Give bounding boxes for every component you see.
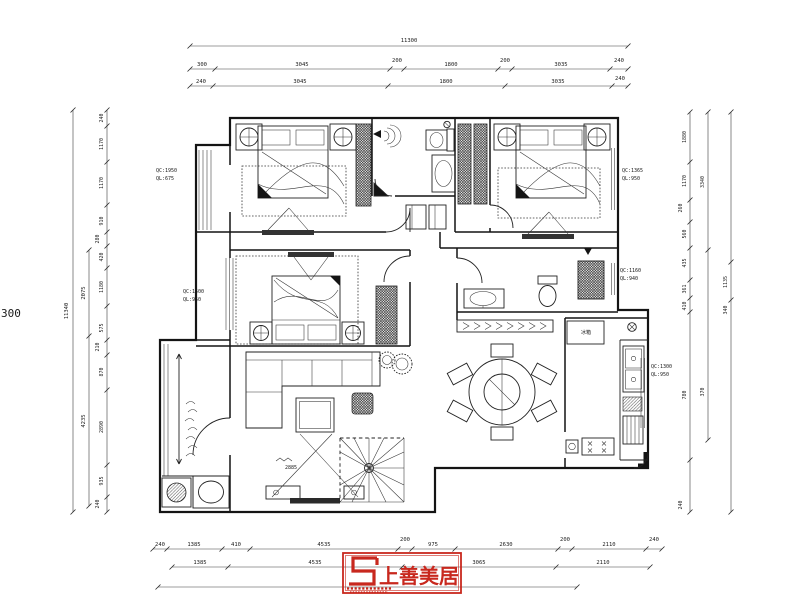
chair xyxy=(531,363,557,385)
floor-plan-drawing: 11300 300 3045 200 1800 200 3035 240 240… xyxy=(0,0,800,600)
dim-label: 2075 xyxy=(81,286,87,299)
tv xyxy=(290,498,340,504)
dim-label: 200 xyxy=(560,537,570,543)
dim-label: 1800 xyxy=(444,62,457,68)
dim-label: 1180 xyxy=(99,281,105,293)
vent-icon xyxy=(584,248,592,255)
doors xyxy=(193,179,648,468)
dim-label: 1170 xyxy=(99,177,105,189)
dim-label: 200 xyxy=(400,537,410,543)
pillow xyxy=(296,130,324,145)
dim-label: 1170 xyxy=(682,175,688,187)
dim-label: 240 xyxy=(155,542,165,548)
chair xyxy=(531,400,557,422)
dim-label: 2110 xyxy=(596,560,609,566)
dim-label: 1170 xyxy=(99,138,105,150)
double-bed xyxy=(516,126,586,198)
dim-label: 11340 xyxy=(64,303,70,320)
door-stop xyxy=(566,440,578,453)
dim-label: 780 xyxy=(682,390,688,399)
pillow xyxy=(520,130,548,145)
floor-plan-page: 11300 300 3045 200 1800 200 3035 240 240… xyxy=(0,0,800,600)
dim-label: 260 xyxy=(678,203,684,212)
hall-cabinet xyxy=(429,205,446,229)
dish-rack xyxy=(623,397,642,411)
dim-label: 240 xyxy=(615,76,625,82)
dim-label: 2885 xyxy=(285,465,297,471)
plant-icon xyxy=(392,354,412,374)
shower-head-icon xyxy=(373,130,381,138)
dim-label: 240 xyxy=(649,537,659,543)
coffee-table xyxy=(296,398,334,432)
side-table xyxy=(352,393,373,414)
dim-label: 410 xyxy=(682,301,688,310)
balcony xyxy=(162,354,229,508)
bedroom-middle-left xyxy=(236,252,364,344)
stove xyxy=(582,438,614,455)
dim-label: 4235 xyxy=(81,414,87,427)
window-label: QC:1500 xyxy=(183,289,204,295)
dim-chain-top: 11300 300 3045 200 1800 200 3035 240 240… xyxy=(188,38,631,89)
dim-label: 280 xyxy=(95,234,101,243)
dim-label: 340 xyxy=(723,305,729,314)
bedroom-top-right xyxy=(494,124,610,239)
window-label: QL:950 xyxy=(651,372,669,378)
pillow xyxy=(262,130,290,145)
chair xyxy=(447,363,473,385)
dim-label: 935 xyxy=(99,476,105,485)
entry-partition xyxy=(457,320,553,332)
dim-label: 3045 xyxy=(295,62,308,68)
window-label: QL:940 xyxy=(620,276,638,282)
dining-room xyxy=(447,344,557,440)
wardrobe xyxy=(458,124,471,204)
chair xyxy=(447,400,473,422)
dim-label: 210 xyxy=(95,342,101,351)
bedroom-top-left xyxy=(236,124,356,235)
dim-label: 240 xyxy=(95,499,101,508)
dim-label: 300 xyxy=(197,62,207,68)
window-label: QL:675 xyxy=(156,176,174,182)
bathroom-middle xyxy=(464,248,604,308)
dim-label: 2110 xyxy=(602,542,615,548)
kitchen: 冰箱 xyxy=(566,321,648,460)
chair xyxy=(491,427,513,440)
drying-rack xyxy=(177,354,182,464)
dim-label: 975 xyxy=(428,542,438,548)
dim-label: 4535 xyxy=(317,542,330,548)
dim-label: 3065 xyxy=(472,560,485,566)
pillow xyxy=(308,325,336,340)
dim-label: 4535 xyxy=(308,560,321,566)
dim-label: 1800 xyxy=(439,79,452,85)
dim-label: 200 xyxy=(500,58,510,64)
dim-label: 200 xyxy=(392,58,402,64)
double-bed xyxy=(258,126,328,198)
dim-label: 420 xyxy=(99,252,105,261)
dim-label: 240 xyxy=(614,58,624,64)
hall-cabinet xyxy=(406,205,426,229)
dim-label: 910 xyxy=(99,216,105,225)
dim-label: 361 xyxy=(682,284,688,293)
window-label: QL:950 xyxy=(183,297,201,303)
spiral-staircase xyxy=(340,438,404,502)
wardrobe xyxy=(474,124,487,204)
sofa xyxy=(246,352,380,428)
dim-label: 240 xyxy=(678,500,684,509)
bathroom-top xyxy=(373,121,455,229)
wardrobe xyxy=(356,124,371,206)
window-label: QC:1365 xyxy=(622,168,643,174)
double-bed xyxy=(272,276,340,344)
dim-label: 575 xyxy=(99,323,105,332)
shoe-cabinet xyxy=(457,320,553,332)
toilet xyxy=(426,130,447,150)
counter-cabinet xyxy=(623,416,643,444)
wardrobes xyxy=(356,124,487,344)
dim-label: 1880 xyxy=(682,131,688,143)
dim-label: 1385 xyxy=(193,560,206,566)
dim-label: 410 xyxy=(231,542,241,548)
dim-label: 2630 xyxy=(499,542,512,548)
dim-label: 3035 xyxy=(551,79,564,85)
window-label: QC:1160 xyxy=(620,268,641,274)
dim-label: 240 xyxy=(99,113,105,122)
living-room: 2885 xyxy=(246,352,412,504)
window-label: QC:1300 xyxy=(651,364,672,370)
chair xyxy=(491,344,513,357)
dim-label: 870 xyxy=(99,367,105,376)
dim-chain-right: 1880 1170 260 560 435 361 410 780 240 33… xyxy=(678,110,734,515)
dim-label: 11300 xyxy=(401,38,418,44)
rug xyxy=(498,168,600,218)
wardrobe xyxy=(376,286,397,344)
pillow xyxy=(554,130,582,145)
shower-cabin xyxy=(578,261,604,299)
dim-label: 240 xyxy=(196,79,206,85)
tv xyxy=(522,234,574,239)
toilet xyxy=(538,276,557,284)
dim-label: 3035 xyxy=(554,62,567,68)
tv xyxy=(288,252,334,257)
logo-s-mark-icon xyxy=(349,558,377,584)
pillow xyxy=(276,325,304,340)
tv-cabinet xyxy=(266,486,300,499)
tv xyxy=(262,230,314,235)
window-label: QL:950 xyxy=(622,176,640,182)
window-label: QC:1950 xyxy=(156,168,177,174)
fridge-label: 冰箱 xyxy=(581,329,591,336)
company-name: 上善美居 xyxy=(379,564,459,588)
dim-label: 370 xyxy=(700,387,706,396)
dim-label: 435 xyxy=(682,258,688,267)
dim-label: 1135 xyxy=(723,276,729,288)
dim-label: 560 xyxy=(682,229,688,238)
dim-label: 3340 xyxy=(700,176,706,188)
dim-label: 2890 xyxy=(99,421,105,433)
dim-chain-left: 11340 2075 4235 240 1170 1170 910 280 42… xyxy=(64,108,110,515)
margin-note: 300 xyxy=(1,307,21,320)
dim-label: 1385 xyxy=(187,542,200,548)
dim-label: 3045 xyxy=(293,79,306,85)
